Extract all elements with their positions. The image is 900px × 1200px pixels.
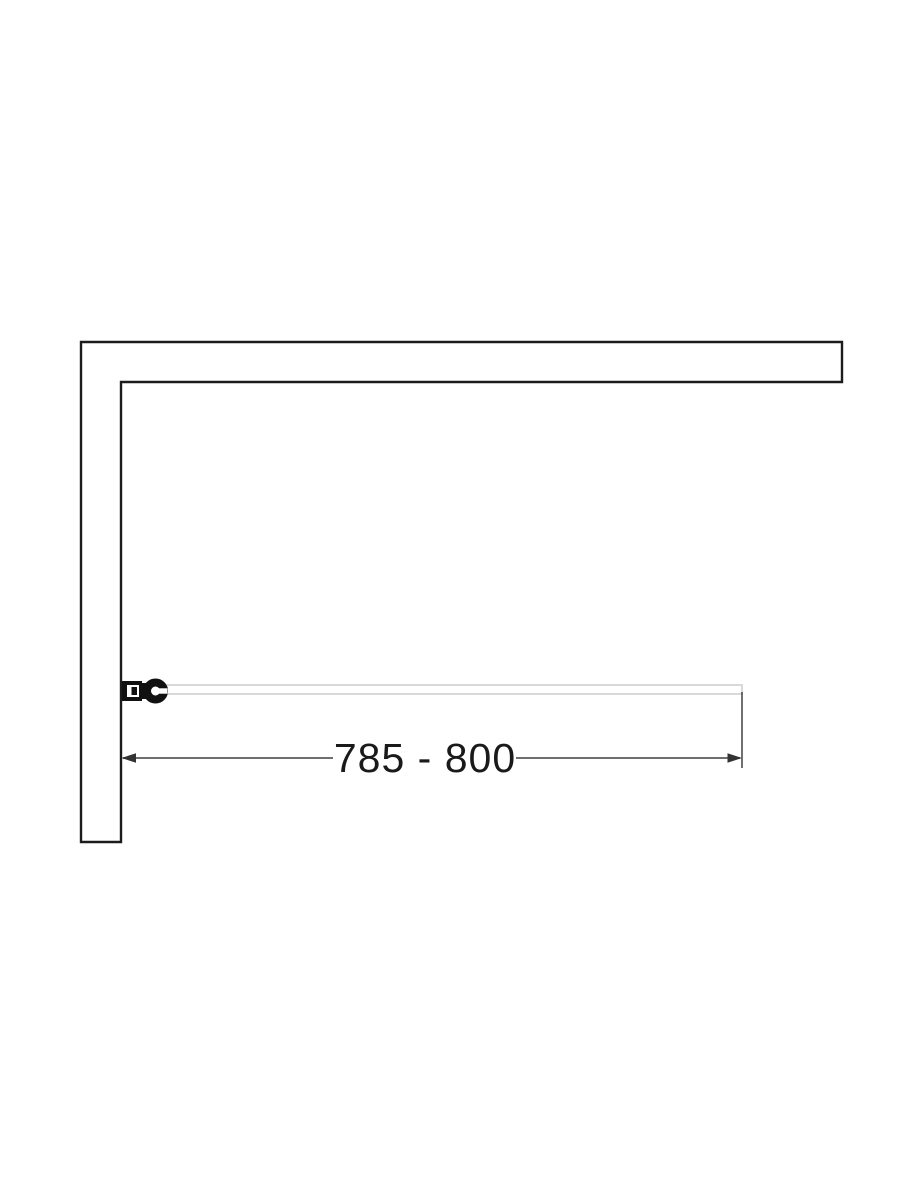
dimension-value-label: 785 - 800 [334, 735, 516, 781]
pivot-hinge-icon [122, 681, 168, 701]
shower-screen-plan-drawing: 785 - 800 [0, 0, 900, 1200]
glass-panel-line [167, 685, 742, 694]
dimension-arrow-right-icon [728, 753, 743, 763]
hinge-glass-slot [153, 688, 168, 693]
technical-drawing-page: 785 - 800 [0, 0, 900, 1200]
dimension-arrow-left-icon [122, 753, 137, 763]
hinge-plate-pin [132, 687, 138, 695]
